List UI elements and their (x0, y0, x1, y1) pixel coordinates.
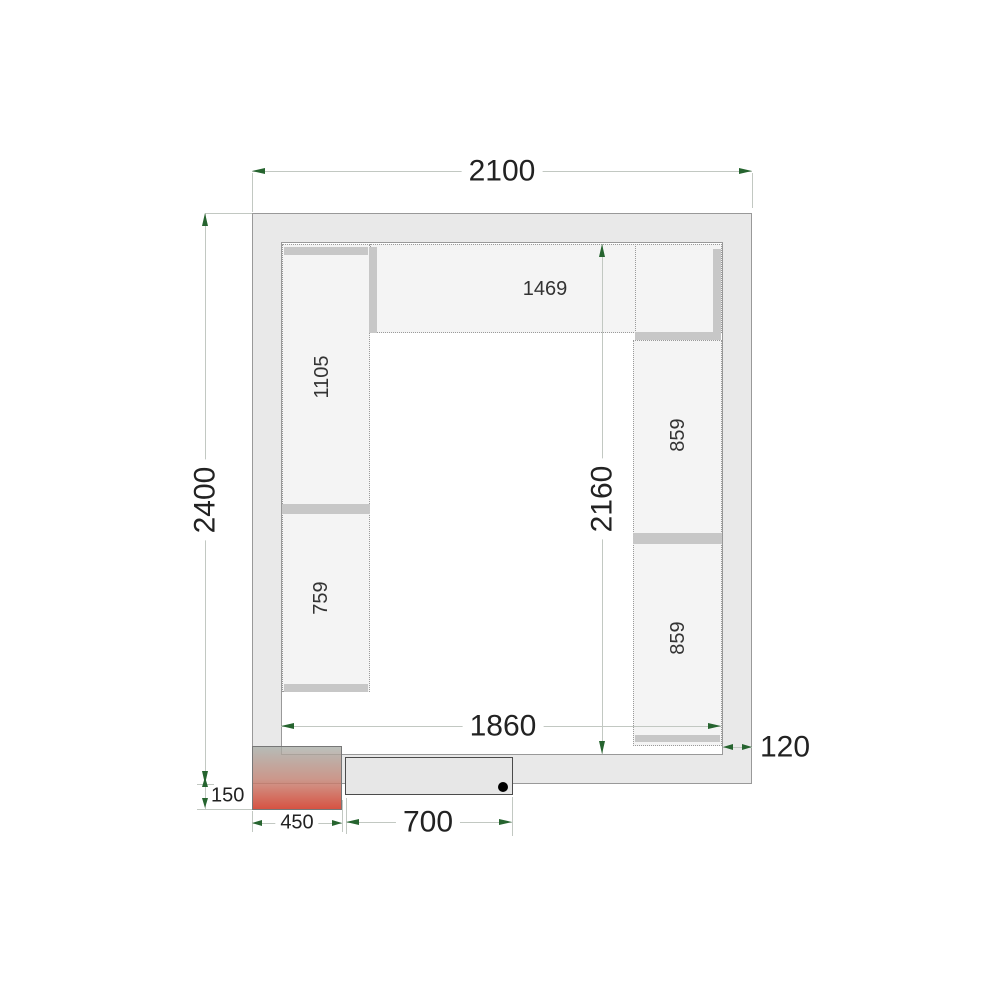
dim-label-unit-offset: 150 (209, 786, 246, 807)
shelf-divider-dotted (635, 244, 636, 333)
dim-label-outer-width: 2100 (462, 155, 543, 187)
ext-line-unit-width-right (342, 800, 343, 832)
dim-arrow-right-icon (708, 723, 721, 729)
ext-line-door-width-right (512, 797, 513, 836)
condensing-unit (252, 746, 342, 810)
shelf-label-right-upper: 859 (668, 418, 688, 451)
dim-arrow-up-icon (202, 213, 208, 226)
dim-label-inner-depth: 2160 (586, 459, 618, 540)
dim-arrow-left-icon (346, 819, 359, 825)
shelf-label-top: 1469 (523, 279, 568, 299)
floor-plan-canvas: 1469 1105 759 859 859 2100 2400 2160 186… (0, 0, 1000, 1000)
ext-line-outer-width-right (752, 173, 753, 208)
shelf-bar-right-corner-horizontal (635, 332, 721, 340)
shelf-label-left-lower: 759 (311, 581, 331, 614)
dim-arrow-down-icon (599, 741, 605, 754)
ext-line-door-width-left (346, 798, 347, 834)
dim-arrow-right-icon (742, 744, 752, 750)
shelf-bar-left-bottom (284, 684, 368, 692)
dim-arrow-up-icon (599, 244, 605, 257)
dim-label-unit-width: 450 (275, 813, 318, 834)
dim-label-door-width: 700 (396, 806, 460, 838)
shelf-bar-right-bottom (635, 735, 720, 742)
dim-label-inner-width: 1860 (463, 710, 544, 742)
dim-arrow-left-icon (252, 168, 265, 174)
ext-line-outer-width-left (252, 173, 253, 212)
dim-label-wall-thickness: 120 (760, 731, 810, 763)
shelf-bar-left-top (284, 247, 368, 255)
door-hinge-dot (498, 782, 508, 792)
dim-arrow-down-icon (202, 798, 208, 808)
dim-arrow-right-icon (499, 819, 512, 825)
shelf-label-left-upper: 1105 (312, 355, 332, 398)
shelf-unit-left (282, 244, 370, 692)
dim-arrow-right-icon (332, 820, 342, 826)
dim-arrow-left-icon (281, 723, 294, 729)
dim-arrow-up-icon (202, 777, 208, 787)
dim-arrow-right-icon (739, 168, 752, 174)
door-leaf (345, 757, 513, 795)
shelf-bar-top-left-vertical (369, 247, 377, 333)
ext-line-outer-depth-top (206, 213, 252, 214)
shelf-bar-left-middle (282, 504, 370, 514)
dim-arrow-left-icon (252, 820, 262, 826)
shelf-bar-right-middle (633, 533, 722, 544)
dim-label-outer-depth: 2400 (189, 460, 221, 541)
dim-arrow-left-icon (723, 744, 733, 750)
shelf-bar-right-corner-vertical (713, 249, 721, 333)
shelf-label-right-lower: 859 (668, 621, 688, 654)
ext-line-unit-offset-bottom (197, 809, 252, 810)
